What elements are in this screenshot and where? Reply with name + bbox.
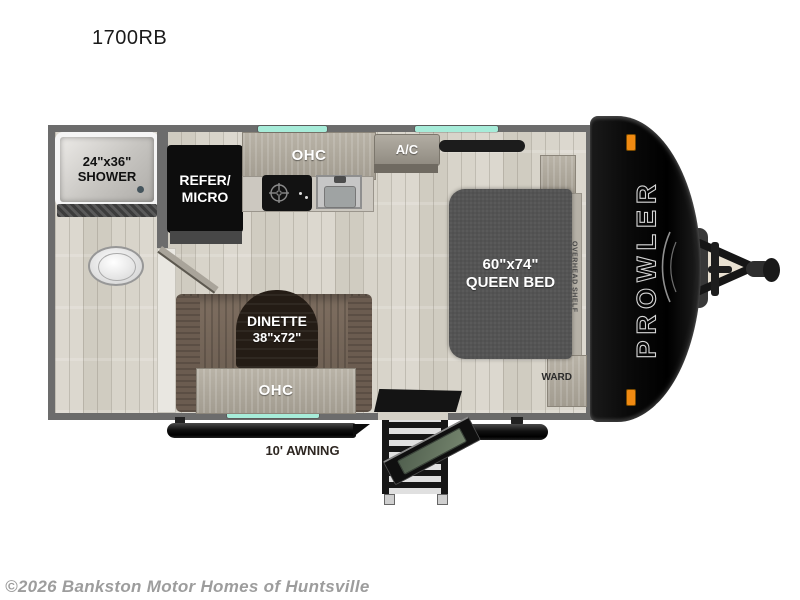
dinette-label: DINETTE — [247, 313, 307, 330]
entry-steps-foot — [437, 494, 448, 505]
bed-size-label: 60"x74" — [483, 256, 539, 274]
toilet-lid-icon — [98, 253, 135, 281]
shower-label: SHOWER — [78, 170, 137, 185]
bed-label: QUEEN BED — [466, 274, 555, 292]
page-title: 1700RB — [92, 27, 167, 50]
wardrobe-label: WARD — [530, 372, 572, 384]
top-window-right — [415, 126, 498, 132]
refer-base-shadow — [170, 231, 242, 244]
sink-faucet-icon — [334, 176, 346, 183]
queen-bed: 60"x74" QUEEN BED — [449, 189, 572, 359]
dinette-overhead-cabinet: OHC — [196, 368, 356, 414]
prowler-swoosh-icon — [656, 228, 682, 306]
sink — [316, 175, 362, 209]
entry-door-mat — [374, 389, 462, 412]
shower-drain-icon — [137, 186, 144, 193]
top-window-left — [258, 126, 327, 132]
window-shade — [439, 140, 525, 152]
bathroom-end-panel — [157, 248, 176, 413]
awning-tip — [353, 424, 370, 437]
floorplan-page: 1700RB 24"x36" SHOWER LINEN SHELVES REFE… — [0, 0, 800, 600]
awning-roll-left — [167, 423, 356, 438]
stove-burner-icon — [267, 181, 291, 205]
refer-label-line2: MICRO — [182, 189, 229, 206]
hitch-coupler-knob — [763, 258, 780, 282]
dinette-ohc-label: OHC — [259, 382, 294, 400]
dinette-size-label: 38"x72" — [253, 330, 301, 346]
shower-step-shadow — [57, 204, 157, 217]
refer-micro: REFER/ MICRO — [167, 145, 243, 233]
shower-size-label: 24"x36" — [83, 155, 131, 170]
ac-base — [374, 164, 438, 173]
stove-knob-icon — [299, 192, 302, 195]
toilet — [88, 246, 144, 286]
stove-knob-icon — [305, 196, 308, 199]
sink-basin-icon — [324, 186, 356, 208]
copyright: ©2026 Bankston Motor Homes of Huntsville — [5, 577, 370, 597]
kitchen-overhead-cabinet: OHC — [242, 132, 376, 180]
ac-label: A/C — [396, 142, 418, 158]
shower: 24"x36" SHOWER — [55, 132, 159, 207]
kitchen-ohc-label: OHC — [292, 147, 327, 165]
stove — [262, 175, 312, 211]
awning-label: 10' AWNING — [255, 443, 350, 458]
tongue-jack-handle — [708, 266, 732, 273]
ac-unit: A/C — [374, 134, 440, 166]
refer-label-line1: REFER/ — [179, 172, 230, 189]
entry-door-opening — [378, 412, 448, 420]
dinette-table: DINETTE 38"x72" — [236, 290, 318, 368]
entry-steps-foot — [384, 494, 395, 505]
